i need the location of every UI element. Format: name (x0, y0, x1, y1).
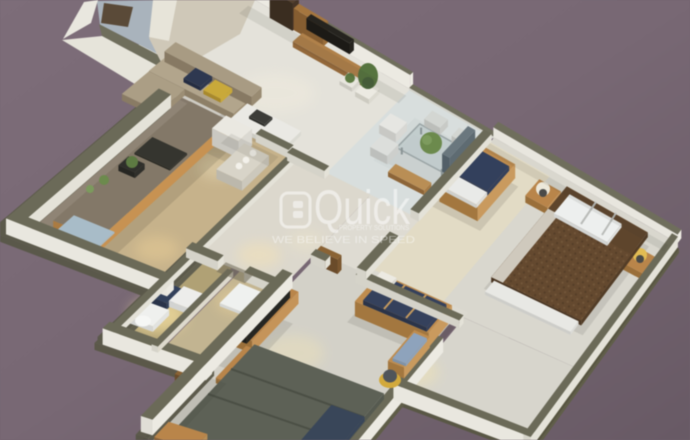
svg-text:PROPERTY SOLUTIONS: PROPERTY SOLUTIONS (339, 223, 409, 232)
svg-text:WE BELIEVE IN SPEED: WE BELIEVE IN SPEED (272, 234, 416, 246)
